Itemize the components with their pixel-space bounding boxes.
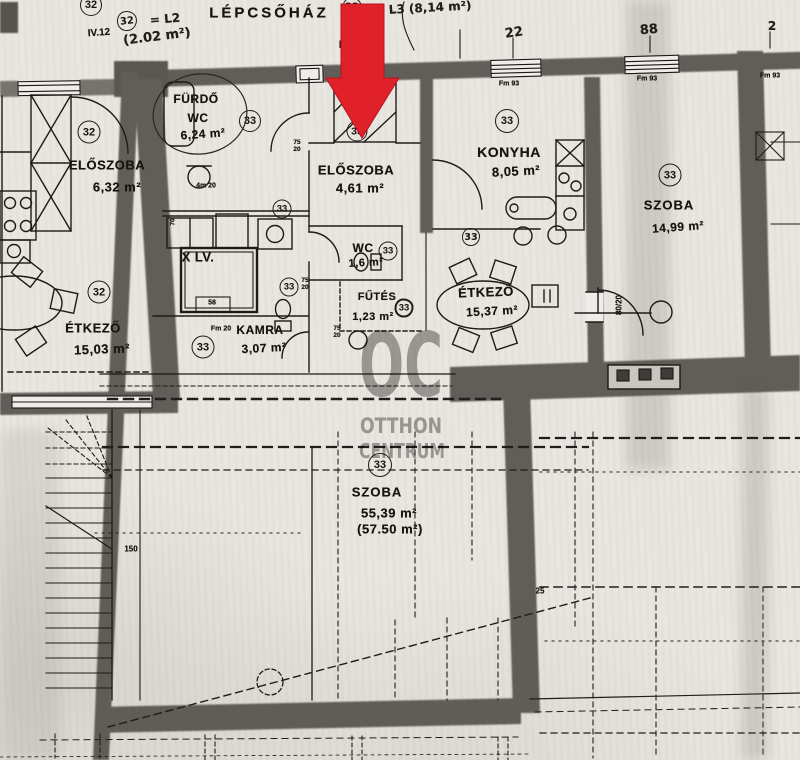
dim-88: 88 <box>639 22 658 39</box>
room-area-furdo: 6,24 m² <box>180 125 226 142</box>
room-label-eloszoba-mid: ELŐSZOBA <box>318 163 394 178</box>
dim-150: 150 <box>124 545 137 554</box>
note-left-eq: = L2 <box>149 11 180 28</box>
unit-badge-konyha: 33 <box>495 109 519 133</box>
room-label-etkezo-mid: ÉTKEZŐ <box>458 284 514 301</box>
unit-badge-eloszoba-left: 32 <box>78 121 101 144</box>
room-area-szoba-right: 14,99 m² <box>652 218 705 236</box>
dim-58: 58 <box>208 300 216 307</box>
dim-25: 25 <box>536 587 545 596</box>
room-label-etkezo-left: ÉTKEZŐ <box>65 321 121 336</box>
wall-mark: Fm 93 <box>637 76 657 83</box>
room-area-eloszoba-left: 6,32 m² <box>93 180 141 195</box>
unit-badge-bath-upper: 33 <box>273 200 292 219</box>
room-area-etkezo-left: 15,03 m² <box>74 341 131 358</box>
floorplan-scan: LÉPCSŐHÁZ 32 32 = L2 (2.02 m²) IV.12 32 … <box>0 0 800 760</box>
room-label-szoba-right: SZOBA <box>644 198 695 213</box>
stairwell-label: LÉPCSŐHÁZ <box>209 5 329 22</box>
dim-70: 70 <box>170 218 177 225</box>
unit-badge-szoba-attic: 33 <box>368 453 392 477</box>
unit-badge-32: 32 <box>80 0 102 16</box>
dim-75-20: 75 20 <box>301 278 308 292</box>
apartment-no-left: IV.12 <box>87 27 110 40</box>
room-area-wc: 1,6 m² <box>348 256 383 270</box>
unit-badge-hand-32b: 32 <box>343 0 362 17</box>
room-area-etkezo-mid: 15,37 m² <box>466 303 519 320</box>
unit-badge-bath-lower: 33 <box>280 278 299 297</box>
unit-badge-furdo: 33 <box>239 110 261 132</box>
unit-badge-kamra: 33 <box>192 336 215 359</box>
room-label-konyha: KONYHA <box>477 144 541 160</box>
room-label-futes: FŰTÉS <box>358 291 397 303</box>
room-area-szoba-attic: 55,39 m² <box>361 506 417 521</box>
room-area-alt-szoba-attic: (57.50 m²) <box>357 522 423 537</box>
dim-75-20: 75 20 <box>333 326 340 340</box>
room-area-futes: 1,23 m² <box>352 311 393 323</box>
room-label-lift: X LV. <box>182 250 215 265</box>
room-label-eloszoba-left: ELŐSZOBA <box>69 158 145 173</box>
room-label-szoba-attic: SZOBA <box>352 485 403 500</box>
room-label-furdo: FÜRDŐ <box>173 92 218 106</box>
dim-75-20: 75 20 <box>293 140 300 154</box>
unit-badge-hand-32: 32 <box>116 10 138 32</box>
apartment-no-mid: IV.1 <box>339 39 358 51</box>
unit-badge-futes: 33 <box>395 299 414 318</box>
unit-badge-eloszoba-mid: 33 <box>347 121 368 142</box>
note-right-eq: = L3 (8,14 m²) <box>374 0 472 18</box>
room-label-furdo-wc: WC <box>188 111 209 125</box>
wall-mark: Fm 93 <box>760 73 780 80</box>
sink-dim: 4m 20 <box>196 183 216 190</box>
room-area-eloszoba-mid: 4,61 m² <box>336 181 384 196</box>
room-label-wc: WC <box>353 241 374 255</box>
unit-badge-etkezo-left: 32 <box>88 281 111 304</box>
room-area-kamra: 3,07 m² <box>241 340 287 356</box>
unit-badge-etkezo-mid: 33 <box>462 228 480 246</box>
wall-mark: Fm 93 <box>499 81 519 88</box>
labels-layer: LÉPCSŐHÁZ 32 32 = L2 (2.02 m²) IV.12 32 … <box>0 0 800 760</box>
dim-80-20: 80/20 <box>615 295 624 315</box>
dim-fm20: Fm 20 <box>211 326 231 333</box>
unit-badge-szoba-right: 33 <box>659 164 682 187</box>
dim-22: 22 <box>504 24 524 41</box>
room-area-konyha: 8,05 m² <box>491 162 540 180</box>
dim-2: 2 <box>768 19 776 33</box>
room-label-kamra: KAMRA <box>236 323 283 337</box>
